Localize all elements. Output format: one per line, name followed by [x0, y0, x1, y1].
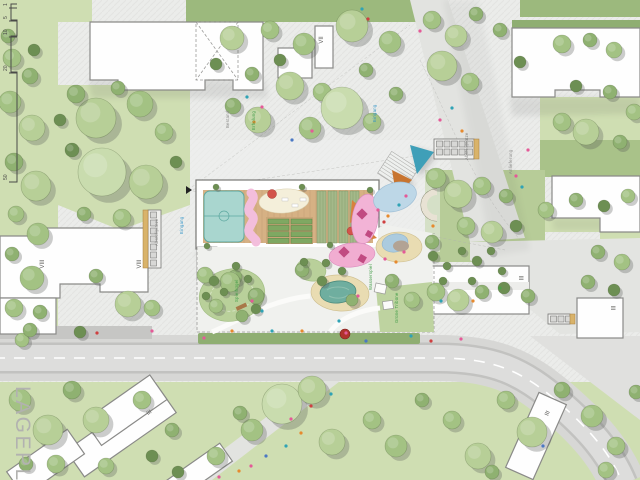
sand-mound [393, 241, 409, 252]
rack-canopy [474, 139, 479, 159]
marker-dot [95, 331, 98, 334]
marker-dot [356, 294, 359, 297]
marker-dot [249, 464, 252, 467]
roof-planter [268, 232, 289, 237]
marker-dot [382, 220, 385, 223]
marker-dot [364, 339, 367, 342]
marker-dot [309, 404, 312, 407]
storey-label: VII [319, 36, 325, 44]
marker-dot [418, 29, 421, 32]
marker-dot [541, 444, 544, 447]
marker-dot [360, 7, 363, 10]
marker-dot [431, 224, 434, 227]
roof-ball-court [204, 191, 244, 242]
roof-green-band [328, 191, 337, 243]
canopy [374, 283, 387, 294]
roof-play-track [249, 193, 257, 242]
roof-green-band [317, 191, 326, 243]
roof-planter [291, 219, 312, 224]
storey-label: VIII [137, 259, 143, 268]
plan-annotation: Bestand [225, 110, 230, 128]
marker-dot [260, 309, 263, 312]
rack-canopy [143, 210, 148, 268]
marker-dot [337, 319, 340, 322]
site-plan-canvas: VIIIVIIIVIIIIIIIIIIIIII Grüne TribüneSpi… [0, 0, 640, 480]
marker-dot [237, 469, 240, 472]
scale-tick-label: 10 [3, 29, 9, 35]
marker-dot [289, 417, 292, 420]
marker-dot [202, 336, 205, 339]
marker-dot [397, 203, 400, 206]
scale-tick-label: 5 [3, 16, 9, 19]
roof-green-band [339, 191, 348, 243]
roof-table [300, 198, 306, 201]
marker-dot [498, 286, 501, 289]
scale-tick-label: 50 [3, 174, 9, 180]
lawn [0, 0, 92, 22]
marker-dot [260, 105, 263, 108]
marker-dot [329, 392, 332, 395]
lawn [186, 0, 420, 22]
marker-dot [429, 339, 432, 342]
marker-dot [366, 17, 369, 20]
scale-tick-label: 1 [3, 3, 9, 6]
title-layer: LAGEPLAN [11, 386, 34, 480]
plan-annotation: Eingang [179, 216, 184, 234]
plan-annotation: Abstellplätze [464, 132, 469, 160]
marker-dot [250, 299, 253, 302]
storey-label: VIII [40, 259, 46, 268]
storey-label: III [517, 275, 523, 280]
marker-dot [230, 329, 233, 332]
marker-dot [439, 299, 442, 302]
plan-annotation: Grüne Tribüne [394, 292, 399, 323]
marker-dot [471, 299, 474, 302]
storey-label: III [609, 305, 615, 310]
canopy [382, 300, 393, 309]
marker-dot [245, 95, 248, 98]
marker-dot [460, 129, 463, 132]
marker-dot [217, 475, 220, 478]
marker-dot [344, 331, 347, 334]
plan-annotation: Abstellplätze [154, 218, 159, 246]
roof-planter [291, 238, 312, 243]
marker-dot [409, 334, 412, 337]
hedge-green-tribune [198, 333, 420, 344]
marker-dot [514, 174, 517, 177]
marker-dot [270, 329, 273, 332]
marker-dot [264, 454, 267, 457]
roof-table [292, 204, 298, 207]
marker-dot [383, 257, 386, 260]
marker-dot [386, 214, 389, 217]
building-east-small [577, 298, 623, 338]
marker-dot [299, 431, 302, 434]
roof-planter [268, 238, 289, 243]
marker-dot [394, 260, 397, 263]
roof-table [282, 198, 288, 201]
roof-ball-dome [268, 190, 277, 199]
marker-dot [526, 148, 529, 151]
marker-dot [150, 329, 153, 332]
marker-dot [459, 337, 462, 340]
roof-planter [291, 225, 312, 230]
plan-annotation: Spielhügel [234, 279, 239, 302]
marker-dot [310, 129, 313, 132]
roof-planter [268, 225, 289, 230]
marker-dot [404, 194, 407, 197]
marker-dot [402, 250, 405, 253]
marker-dot [290, 138, 293, 141]
roof-planter [268, 219, 289, 224]
plan-annotation: Eingang [372, 104, 377, 122]
plan-annotation: Erholung [251, 110, 256, 130]
plan-annotation: Wasserspiel [368, 264, 373, 290]
cast-shadow [510, 97, 640, 116]
marker-dot [376, 208, 379, 211]
scale-tick-label: 20 [3, 65, 9, 71]
marker-dot [450, 106, 453, 109]
rack-canopy [570, 314, 575, 324]
roof-planter [291, 232, 312, 237]
marker-dot [438, 118, 441, 121]
marker-dot [300, 329, 303, 332]
marker-dot [284, 444, 287, 447]
marker-dot [520, 185, 523, 188]
plan-title: LAGEPLAN [11, 386, 34, 480]
lawn [520, 0, 640, 17]
site-plan: VIIIVIIIVIIIIIIIIIIIIII Grüne TribüneSpi… [0, 0, 640, 480]
plan-annotation: Anlieferung [508, 149, 513, 174]
